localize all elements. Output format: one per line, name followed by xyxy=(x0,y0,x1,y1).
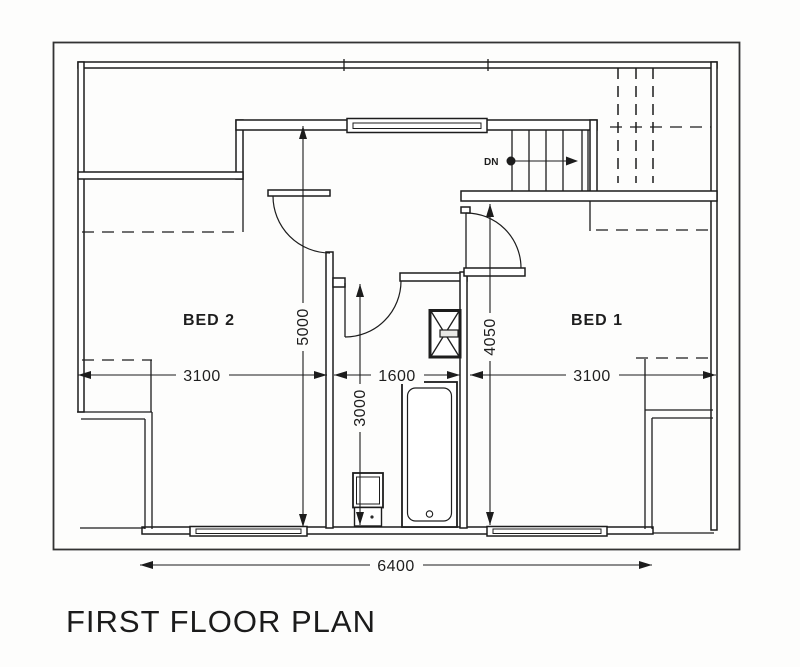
bathroom-fixtures xyxy=(353,311,460,528)
stairs-arrow-origin-dot xyxy=(507,157,516,166)
bed1-door-swing xyxy=(466,213,521,268)
windows xyxy=(190,119,607,537)
bathroom-door-swing xyxy=(345,281,401,337)
floor-plan-page: DN xyxy=(0,0,800,667)
bed2-label: BED 2 xyxy=(183,312,235,329)
room-labels: BED 2 BED 1 xyxy=(183,312,623,329)
bathtub-drain xyxy=(426,511,432,517)
dim-bed1-depth: 4050 xyxy=(482,318,499,356)
stairs-down-arrow xyxy=(566,157,578,166)
drawing-title: FIRST FLOOR PLAN xyxy=(66,604,376,639)
stairs: DN xyxy=(484,130,588,191)
eaves-recess-left xyxy=(77,412,152,529)
dim-bed1-width: 3100 xyxy=(573,368,611,385)
roof-dashed-lines xyxy=(618,68,653,183)
bed2-door-swing xyxy=(273,196,330,253)
dim-landing-depth: 5000 xyxy=(295,308,312,346)
dim-bathroom-width: 1600 xyxy=(378,368,416,385)
bed1-label: BED 1 xyxy=(571,312,623,329)
bed2-door-leaf xyxy=(268,190,330,196)
dim-bed2-width: 3100 xyxy=(183,368,221,385)
stairs-dn-label: DN xyxy=(484,157,498,168)
dim-overall-width: 6400 xyxy=(377,558,415,575)
dim-bathroom-depth: 3000 xyxy=(352,389,369,427)
eaves-recess-right xyxy=(645,359,714,533)
floor-plan-drawing: DN xyxy=(0,0,800,667)
